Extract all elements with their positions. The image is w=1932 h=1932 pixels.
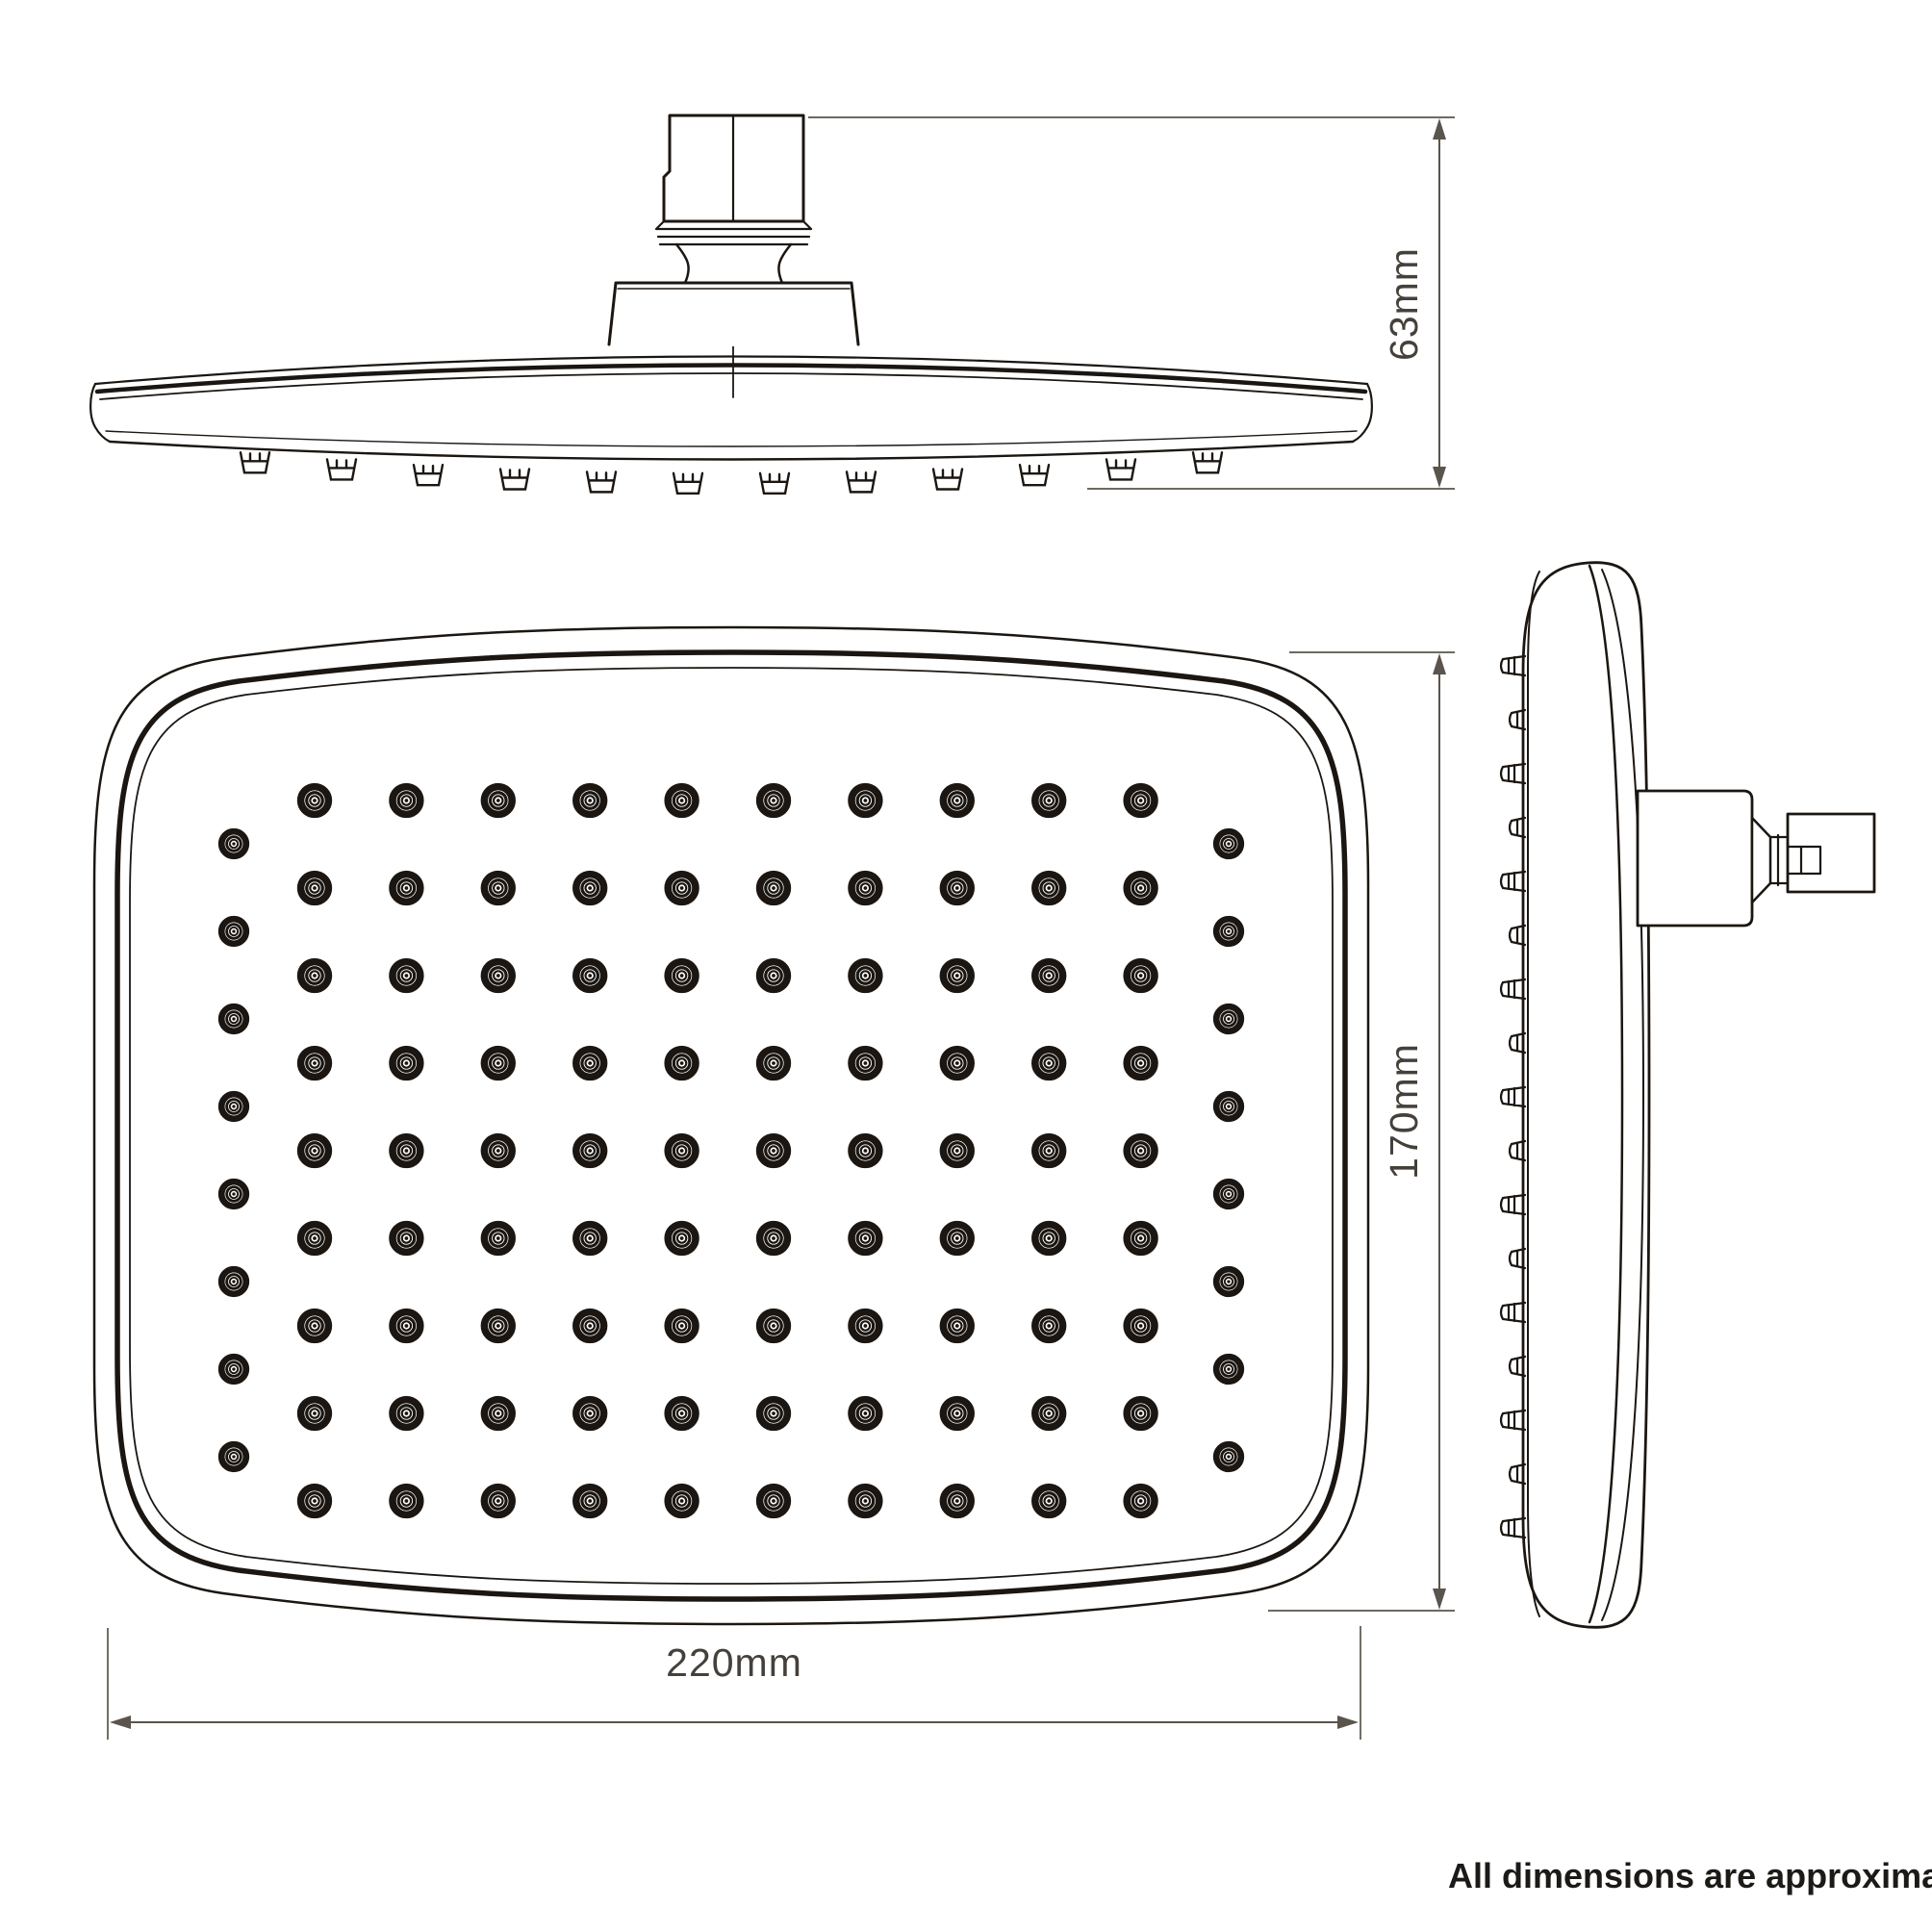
nozzle <box>760 1225 788 1253</box>
nozzle <box>393 1487 420 1515</box>
profile-nozzle-bump <box>847 471 876 492</box>
nozzle <box>852 1137 879 1165</box>
side-nozzle-bump <box>1501 979 1525 999</box>
nozzle <box>943 787 971 815</box>
dimension-label-170mm: 170mm <box>1382 1043 1426 1180</box>
nozzle <box>301 875 329 902</box>
nozzle <box>852 1050 879 1078</box>
nozzle <box>668 1487 696 1515</box>
nozzle <box>576 1400 604 1428</box>
side-connector-base <box>1638 791 1752 926</box>
dimension-220mm-arrow-left <box>110 1716 131 1729</box>
nozzle <box>1035 1312 1063 1340</box>
nozzle <box>301 1400 329 1428</box>
profile-bottom-edge <box>110 442 1353 460</box>
side-nozzle-bumps <box>1501 656 1525 1538</box>
nozzle <box>943 1487 971 1515</box>
nozzle <box>1216 1094 1241 1119</box>
nozzle <box>852 1400 879 1428</box>
nozzle <box>852 1225 879 1253</box>
nozzle <box>1216 1006 1241 1031</box>
nozzle <box>760 1312 788 1340</box>
side-nozzle-bump <box>1510 1033 1525 1053</box>
nozzle <box>221 919 246 944</box>
dimension-170mm-extension-lines <box>1268 652 1455 1611</box>
side-connector-neck <box>1752 818 1770 902</box>
side-nozzle-bump <box>1510 1249 1525 1268</box>
dimension-170mm-arrow-down <box>1433 1589 1446 1610</box>
profile-nozzle-bump <box>1020 465 1049 485</box>
nozzle <box>943 1137 971 1165</box>
nozzle <box>301 787 329 815</box>
side-nozzle-bump <box>1510 710 1525 729</box>
profile-nozzle-bump <box>587 471 616 492</box>
front-view <box>94 627 1368 1624</box>
nozzle <box>484 1225 512 1253</box>
top-profile-view <box>90 115 1372 494</box>
dimension-63mm-arrow-up <box>1433 118 1446 140</box>
nozzle <box>576 1487 604 1515</box>
dimension-170mm: 170mm <box>1268 652 1455 1611</box>
nozzle <box>484 1312 512 1340</box>
profile-nozzle-bump <box>674 473 702 494</box>
side-nozzle-bump <box>1510 1141 1525 1160</box>
nozzle <box>668 787 696 815</box>
nozzle <box>393 787 420 815</box>
nozzle <box>576 1137 604 1165</box>
nozzle <box>393 875 420 902</box>
nozzle <box>852 1487 879 1515</box>
nozzle <box>668 1050 696 1078</box>
profile-underside-line <box>106 431 1357 446</box>
side-nozzle-bump <box>1501 764 1525 783</box>
nozzle <box>576 1312 604 1340</box>
profile-nozzle-bump <box>500 470 529 490</box>
connector-ball-joint <box>676 244 791 283</box>
nozzle <box>668 1225 696 1253</box>
side-nozzle-bump <box>1510 1464 1525 1484</box>
nozzle <box>1035 1400 1063 1428</box>
nozzle <box>1127 1312 1155 1340</box>
nozzle <box>301 1487 329 1515</box>
nozzle <box>943 875 971 902</box>
nozzle <box>301 1312 329 1340</box>
nozzle <box>1035 875 1063 902</box>
dimension-63mm-extension-lines <box>808 117 1455 489</box>
dimension-63mm-arrow-down <box>1433 467 1446 488</box>
side-nozzle-bump <box>1510 1357 1525 1376</box>
side-nozzle-bump <box>1501 1303 1525 1322</box>
nozzle <box>576 787 604 815</box>
nozzle <box>668 962 696 990</box>
nozzle <box>1216 831 1241 856</box>
dimension-63mm: 63mm <box>808 117 1455 489</box>
side-nozzle-bump <box>1501 1411 1525 1430</box>
nozzle <box>484 1400 512 1428</box>
nozzle <box>760 1400 788 1428</box>
nozzle <box>852 1312 879 1340</box>
nozzle <box>393 962 420 990</box>
nozzle <box>943 1050 971 1078</box>
nozzle <box>760 787 788 815</box>
profile-nozzle-bump <box>933 470 962 490</box>
profile-nozzle-bump <box>1193 452 1222 472</box>
dimension-label-63mm: 63mm <box>1382 247 1426 361</box>
nozzle <box>1035 1050 1063 1078</box>
approximate-dimensions-note: All dimensions are approximate <box>1448 1856 1932 1895</box>
dimension-220mm: 220mm <box>108 1626 1360 1740</box>
nozzle <box>1127 1400 1155 1428</box>
nozzle <box>1035 962 1063 990</box>
profile-nozzle-bump <box>760 473 789 494</box>
side-nozzle-bump <box>1510 926 1525 945</box>
nozzle <box>221 1357 246 1382</box>
nozzle <box>668 1400 696 1428</box>
nozzle <box>852 787 879 815</box>
nozzle <box>221 1006 246 1031</box>
nozzle <box>1127 962 1155 990</box>
nozzle <box>760 1050 788 1078</box>
dimension-170mm-arrow-up <box>1433 653 1446 674</box>
side-nozzle-bump <box>1510 818 1525 837</box>
shower-head-technical-drawing: 63mm 170mm 220mm All dimensions are appr… <box>0 0 1932 1932</box>
nozzle <box>221 1444 246 1469</box>
nozzle <box>760 875 788 902</box>
nozzle <box>221 831 246 856</box>
nozzle <box>393 1137 420 1165</box>
nozzle <box>943 962 971 990</box>
nozzle <box>668 1312 696 1340</box>
nozzle <box>393 1050 420 1078</box>
side-nozzle-bump <box>1501 1087 1525 1106</box>
side-nozzle-bump <box>1501 872 1525 891</box>
nozzle <box>576 875 604 902</box>
nozzle <box>484 962 512 990</box>
profile-nozzle-bump <box>1106 459 1135 479</box>
profile-nozzle-bump <box>241 452 269 472</box>
nozzle <box>852 962 879 990</box>
nozzle <box>484 1137 512 1165</box>
side-nozzle-bump <box>1501 1518 1525 1538</box>
nozzle <box>1216 1357 1241 1382</box>
nozzle <box>1127 1225 1155 1253</box>
nozzle <box>1216 919 1241 944</box>
nozzle <box>760 1487 788 1515</box>
nozzle <box>943 1225 971 1253</box>
side-nozzle-bump <box>1501 1195 1525 1214</box>
front-outer-edge <box>94 627 1368 1624</box>
nozzle <box>668 1137 696 1165</box>
nozzle <box>1035 1225 1063 1253</box>
nozzle <box>1216 1269 1241 1294</box>
nozzle <box>943 1312 971 1340</box>
dimension-label-220mm: 220mm <box>666 1640 802 1685</box>
nozzle <box>484 875 512 902</box>
nozzle <box>1127 875 1155 902</box>
nozzle <box>1216 1182 1241 1207</box>
nozzle <box>668 875 696 902</box>
nozzle <box>1216 1444 1241 1469</box>
nozzle <box>221 1094 246 1119</box>
nozzle <box>852 875 879 902</box>
nozzle <box>301 962 329 990</box>
profile-nozzle-bump <box>414 465 443 485</box>
front-nozzle-array <box>221 787 1241 1515</box>
nozzle <box>484 787 512 815</box>
nozzle <box>576 962 604 990</box>
nozzle <box>1127 1487 1155 1515</box>
side-view <box>1501 563 1874 1628</box>
nozzle <box>760 1137 788 1165</box>
nozzle <box>221 1182 246 1207</box>
technical-drawing-page: 63mm 170mm 220mm All dimensions are appr… <box>0 0 1932 1932</box>
nozzle <box>943 1400 971 1428</box>
nozzle <box>393 1400 420 1428</box>
nozzle <box>221 1269 246 1294</box>
nozzle <box>1127 787 1155 815</box>
nozzle <box>301 1050 329 1078</box>
nozzle <box>393 1225 420 1253</box>
nozzle <box>760 962 788 990</box>
connector-base-fill <box>609 283 858 346</box>
nozzle <box>1035 787 1063 815</box>
nozzle <box>1127 1050 1155 1078</box>
side-nozzle-bump <box>1501 656 1525 675</box>
connector-nut-rings <box>656 221 811 244</box>
profile-nozzle-bump <box>327 459 356 479</box>
nozzle <box>301 1225 329 1253</box>
dimension-220mm-arrow-right <box>1337 1716 1359 1729</box>
nozzle <box>301 1137 329 1165</box>
side-connector-rings <box>1770 835 1788 885</box>
nozzle <box>393 1312 420 1340</box>
nozzle <box>576 1050 604 1078</box>
nozzle <box>484 1050 512 1078</box>
nozzle <box>1035 1487 1063 1515</box>
nozzle <box>484 1487 512 1515</box>
nozzle <box>1127 1137 1155 1165</box>
nozzle <box>1035 1137 1063 1165</box>
nozzle <box>576 1225 604 1253</box>
